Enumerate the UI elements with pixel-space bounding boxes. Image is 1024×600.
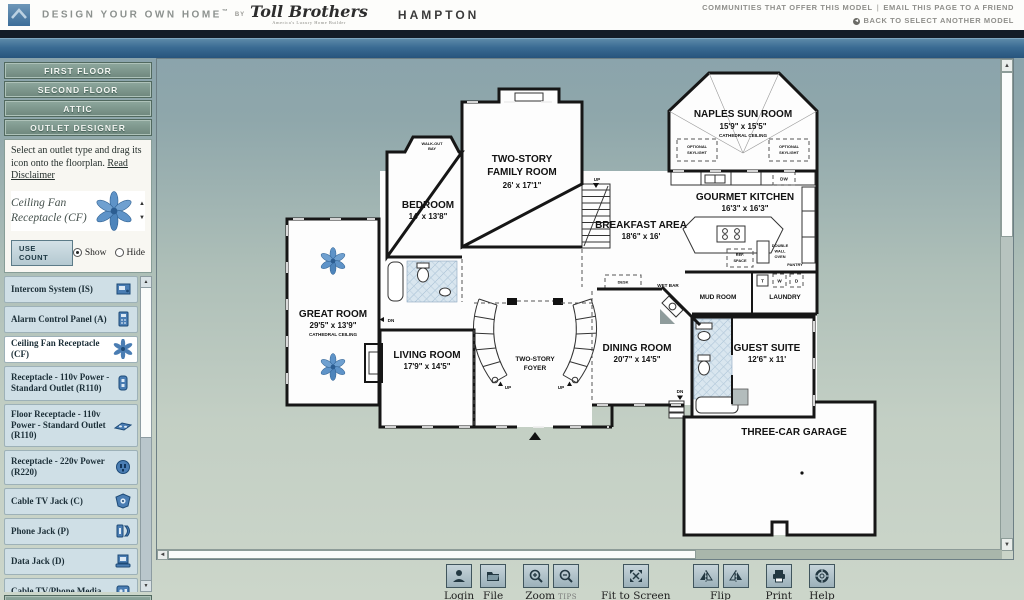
room-label-mud-room: MUD ROOM (700, 294, 737, 301)
media-panel-icon (113, 581, 133, 592)
attic-button[interactable]: ATTIC (4, 100, 152, 117)
login-label: Login (444, 590, 474, 600)
selected-outlet-preview: Ceiling Fan Receptacle (CF) ▲ (11, 191, 145, 231)
room-label-dining-room: DINING ROOM (603, 343, 672, 354)
svg-text:DOUBLE: DOUBLE (772, 243, 789, 248)
floor-outlet-icon (113, 415, 133, 435)
svg-text:WALL: WALL (774, 249, 786, 254)
list-item-receptacle-110v[interactable]: Receptacle - 110v Power - Standard Outle… (4, 366, 138, 401)
model-name: HAMPTON (398, 8, 479, 22)
help-button[interactable] (809, 564, 835, 588)
sidebar: FIRST FLOOR SECOND FLOOR ATTIC OUTLET DE… (4, 62, 152, 600)
login-button[interactable] (446, 564, 472, 588)
fit-to-screen-icon (628, 568, 644, 584)
canvas-vscroll-thumb[interactable] (1001, 72, 1013, 237)
room-label-garage: THREE-CAR GARAGE (741, 427, 847, 438)
svg-text:26' x 17'1": 26' x 17'1" (503, 181, 542, 190)
room-label-guest-suite: GUEST SUITE (734, 343, 801, 354)
list-item-data-jack[interactable]: Data Jack (D) (4, 548, 138, 575)
svg-text:DW: DW (780, 177, 788, 182)
email-page-link[interactable]: EMAIL THIS PAGE TO A FRIEND (883, 3, 1014, 12)
zoom-out-icon (558, 568, 574, 584)
flip-horizontal-button[interactable] (693, 564, 719, 588)
svg-text:FOYER: FOYER (524, 365, 547, 372)
phone-jack-icon (113, 521, 133, 541)
flip-right-icon (728, 568, 744, 584)
svg-text:OPTIONAL: OPTIONAL (779, 144, 800, 149)
show-label: Show (85, 248, 107, 258)
svg-text:UP: UP (558, 385, 564, 390)
link-separator: | (877, 3, 880, 12)
app-title: DESIGN YOUR OWN HOME™ (42, 9, 228, 20)
svg-text:CATHEDRAL CEILING: CATHEDRAL CEILING (309, 332, 357, 337)
outlet-list-scrollbar[interactable]: ▲ ▼ (140, 276, 152, 592)
back-icon: ◄ (853, 18, 860, 25)
svg-text:DESK: DESK (618, 280, 629, 285)
svg-text:DN: DN (677, 389, 684, 394)
svg-text:DN: DN (388, 318, 395, 323)
room-label-bedroom: BEDROOM (402, 200, 454, 211)
blue-band (0, 38, 1024, 58)
outlet-220v-icon (113, 457, 133, 477)
header: DESIGN YOUR OWN HOME™ BY Toll Brothers A… (0, 0, 1024, 30)
room-label-family-room: TWO-STORY (492, 154, 553, 165)
list-item-receptacle-220v[interactable]: Receptacle - 220v Power (R220) (4, 450, 138, 485)
by-label: BY (235, 12, 245, 18)
canvas-vertical-scrollbar[interactable]: ▲ ▼ (1000, 59, 1013, 551)
svg-text:T: T (761, 279, 764, 284)
show-radio[interactable] (73, 248, 82, 257)
list-item-phone-jack[interactable]: Phone Jack (P) (4, 518, 138, 545)
svg-text:29'5" x 13'9": 29'5" x 13'9" (310, 321, 357, 330)
room-label-gourmet-kitchen: GOURMET KITCHEN (696, 192, 794, 203)
list-item-intercom[interactable]: Intercom System (IS) (4, 276, 138, 303)
tips-link[interactable]: TIPS (558, 593, 577, 600)
svg-text:UP: UP (594, 177, 600, 182)
help-label: Help (809, 590, 834, 600)
brand-tagline: America's Luxury Home Builder (272, 21, 346, 26)
svg-text:16'3" x 16'3": 16'3" x 16'3" (722, 204, 769, 213)
file-button[interactable] (480, 564, 506, 588)
zoom-in-button[interactable] (523, 564, 549, 588)
room-label-breakfast-area: BREAKFAST AREA (595, 220, 687, 231)
back-to-select-model-link[interactable]: BACK TO SELECT ANOTHER MODEL (863, 16, 1014, 25)
toll-brothers-logo-icon (8, 4, 30, 26)
print-button[interactable] (766, 564, 792, 588)
photos-button[interactable]: PHOTOS (4, 595, 152, 600)
svg-text:W: W (777, 279, 782, 284)
svg-text:UP: UP (505, 385, 511, 390)
design-your-own-home-app: DESIGN YOUR OWN HOME™ BY Toll Brothers A… (0, 0, 1024, 600)
room-label-great-room: GREAT ROOM (299, 309, 367, 320)
canvas-hscroll-thumb[interactable] (168, 550, 696, 559)
outlet-next-arrow[interactable]: ▼ (139, 215, 145, 221)
first-floor-button[interactable]: FIRST FLOOR (4, 62, 152, 79)
intercom-icon (113, 279, 133, 299)
svg-text:REF.: REF. (736, 252, 744, 257)
file-label: File (483, 590, 503, 600)
svg-text:OVEN: OVEN (774, 254, 785, 259)
outlet-110v-icon (113, 373, 133, 393)
alarm-panel-icon (113, 309, 133, 329)
data-jack-icon (113, 551, 133, 571)
flip-left-icon (698, 568, 714, 584)
outlet-designer-button[interactable]: OUTLET DESIGNER (4, 119, 152, 136)
zoom-label: Zoom (525, 590, 555, 600)
list-item-ceiling-fan[interactable]: Ceiling Fan Receptacle (CF) (4, 336, 138, 363)
brand-name: Toll Brothers (250, 4, 368, 20)
bottom-toolbar: Login File ZoomTIPS Fit to Screen (438, 564, 835, 600)
canvas-scroll-left-arrow[interactable]: ◄ (157, 550, 168, 560)
room-label-foyer: TWO-STORY (515, 356, 555, 363)
svg-text:FAMILY ROOM: FAMILY ROOM (487, 167, 556, 178)
print-icon (771, 568, 787, 584)
svg-text:12'6" x 11': 12'6" x 11' (748, 355, 786, 364)
print-label: Print (766, 590, 792, 600)
login-icon (451, 568, 467, 584)
floorplan-drawing: NAPLES SUN ROOM 15'9" x 15'5" CATHEDRAL … (157, 59, 1002, 551)
communities-link[interactable]: COMMUNITIES THAT OFFER THIS MODEL (702, 3, 873, 12)
svg-text:SPACE: SPACE (733, 258, 747, 263)
svg-text:17'9" x 14'5": 17'9" x 14'5" (404, 362, 451, 371)
second-floor-button[interactable]: SECOND FLOOR (4, 81, 152, 98)
list-scroll-up-arrow[interactable]: ▲ (141, 277, 151, 288)
canvas-scroll-up-arrow[interactable]: ▲ (1001, 59, 1013, 72)
list-item-floor-receptacle[interactable]: Floor Receptacle - 110v Power - Standard… (4, 404, 138, 447)
fit-to-screen-button[interactable] (623, 564, 649, 588)
svg-text:SKYLIGHT: SKYLIGHT (779, 150, 799, 155)
svg-text:18'6" x 16': 18'6" x 16' (622, 232, 661, 241)
svg-text:WET BAR: WET BAR (657, 283, 679, 288)
list-item-media-panel[interactable]: Cable TV/Phone Media (4, 578, 138, 592)
ceiling-fan-preview-icon[interactable] (92, 191, 136, 231)
ceiling-fan-icon (113, 339, 133, 359)
list-item-cable-tv[interactable]: Cable TV Jack (C) (4, 488, 138, 515)
svg-text:BAY: BAY (428, 146, 436, 151)
svg-text:SKYLIGHT: SKYLIGHT (687, 150, 707, 155)
outlet-prev-arrow[interactable]: ▲ (139, 201, 145, 207)
list-scroll-thumb[interactable] (141, 288, 151, 438)
floorplan-canvas[interactable]: NAPLES SUN ROOM 15'9" x 15'5" CATHEDRAL … (156, 58, 1014, 560)
outlet-type-list: Intercom System (IS) Alarm Control Panel… (4, 276, 152, 592)
zoom-out-button[interactable] (553, 564, 579, 588)
instruction-text: Select an outlet type and drag its icon … (11, 145, 145, 183)
svg-text:20'7" x 14'5": 20'7" x 14'5" (614, 355, 661, 364)
svg-text:15'9" x 15'5": 15'9" x 15'5" (720, 122, 767, 131)
fit-to-screen-label: Fit to Screen (601, 590, 670, 600)
use-count-button[interactable]: USE COUNT (11, 240, 73, 266)
hide-radio[interactable] (115, 248, 124, 257)
canvas-horizontal-scrollbar[interactable]: ◄ (157, 549, 1002, 559)
svg-text:CATHEDRAL CEILING: CATHEDRAL CEILING (719, 133, 767, 138)
canvas-scroll-down-arrow[interactable]: ▼ (1001, 538, 1013, 551)
file-folder-icon (485, 568, 501, 584)
room-label-naples-sun-room: NAPLES SUN ROOM (694, 109, 792, 120)
help-lifering-icon (814, 568, 830, 584)
hide-label: Hide (127, 248, 145, 258)
flip-label: Flip (710, 590, 731, 600)
room-label-laundry: LAUNDRY (769, 294, 801, 301)
flip-vertical-button[interactable] (723, 564, 749, 588)
list-item-alarm[interactable]: Alarm Control Panel (A) (4, 306, 138, 333)
cable-tv-jack-icon (113, 491, 133, 511)
outlet-controls: USE COUNT Show Hide (11, 240, 145, 266)
svg-text:PANTRY: PANTRY (787, 262, 803, 267)
list-scroll-down-arrow[interactable]: ▼ (141, 580, 151, 591)
outlet-designer-panel: Select an outlet type and drag its icon … (4, 139, 152, 273)
selected-outlet-label: Ceiling Fan Receptacle (CF) (11, 196, 92, 225)
navy-divider-bar (0, 30, 1024, 38)
room-label-living-room: LIVING ROOM (393, 350, 460, 361)
zoom-in-icon (528, 568, 544, 584)
svg-text:OPTIONAL: OPTIONAL (687, 144, 708, 149)
svg-text:14' x 13'8": 14' x 13'8" (409, 212, 448, 221)
